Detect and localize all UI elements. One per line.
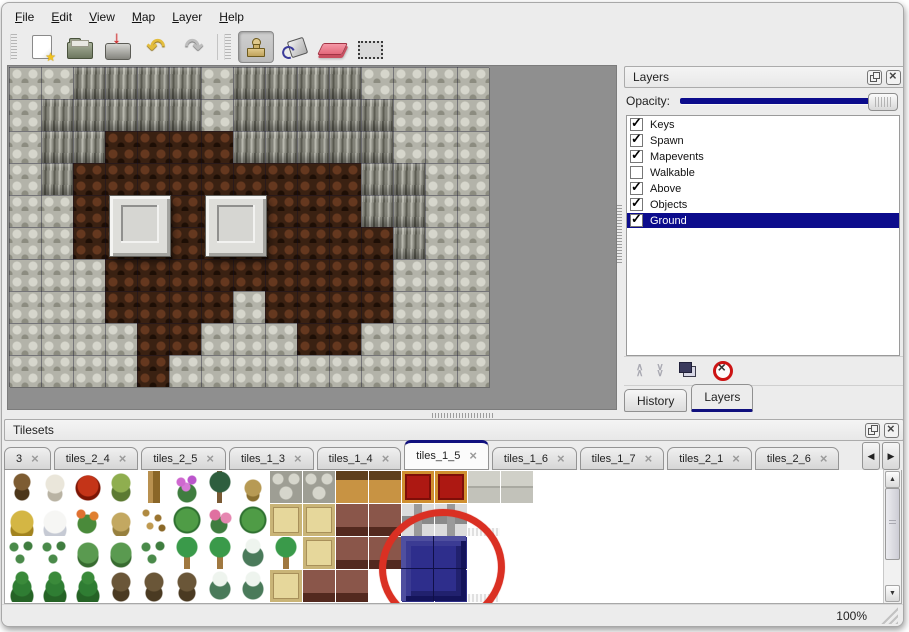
tab-close-icon[interactable]: ×: [206, 454, 214, 464]
tab-label: 3: [16, 453, 22, 465]
map-tile-brown-roof[interactable]: [105, 131, 137, 163]
map-tile-gray-scale-ground[interactable]: [457, 259, 489, 291]
map-tile-gray-scale-ground[interactable]: [457, 67, 489, 99]
map-tile-brown-roof[interactable]: [137, 259, 169, 291]
map-tile-brown-roof[interactable]: [169, 291, 201, 323]
map-tile-brown-roof[interactable]: [137, 291, 169, 323]
map-tile-brown-roof[interactable]: [201, 291, 233, 323]
map-tile-brown-roof[interactable]: [73, 227, 105, 259]
palette-tile-shrubs[interactable]: [6, 537, 38, 569]
palette-tile-gnarled-tree[interactable]: [105, 570, 137, 602]
fill-tool-button[interactable]: [276, 31, 312, 63]
map-tile-gray-scale-ground[interactable]: [457, 99, 489, 131]
float-icon[interactable]: [867, 70, 882, 85]
float-icon[interactable]: [865, 423, 880, 438]
map-tile-cliff-rock[interactable]: [393, 163, 425, 195]
map-tile-brown-roof[interactable]: [137, 131, 169, 163]
map-tile-brown-roof[interactable]: [137, 163, 169, 195]
palette-tile-tan-tile[interactable]: [270, 504, 302, 536]
map-tile-gray-scale-ground[interactable]: [233, 291, 265, 323]
close-icon[interactable]: [884, 423, 899, 438]
map-tile-brown-roof[interactable]: [265, 291, 297, 323]
map-tile-gray-scale-ground[interactable]: [201, 67, 233, 99]
map-tile-gray-scale-ground[interactable]: [9, 131, 41, 163]
map-tile-cliff-rock[interactable]: [233, 99, 265, 131]
map-tile-gray-scale-ground[interactable]: [41, 259, 73, 291]
tileset-tab-3[interactable]: 3×: [4, 447, 51, 470]
palette-tile-wood-shelf[interactable]: [336, 471, 368, 503]
layer-visibility-checkbox[interactable]: [630, 214, 643, 227]
palette-tile-dark-palm[interactable]: [204, 471, 236, 503]
palette-tile-trunk[interactable]: [138, 471, 170, 503]
map-tile-brown-roof[interactable]: [329, 291, 361, 323]
menu-item-edit[interactable]: Edit: [51, 10, 72, 24]
map-tile-brown-roof[interactable]: [201, 163, 233, 195]
map-tile-gray-scale-ground[interactable]: [457, 163, 489, 195]
map-tile-gray-scale-ground[interactable]: [9, 163, 41, 195]
palette-scrollbar[interactable]: ▲ ▼: [883, 470, 901, 603]
layer-visibility-checkbox[interactable]: [630, 118, 643, 131]
map-tile-gray-scale-ground[interactable]: [105, 323, 137, 355]
map-canvas[interactable]: [7, 65, 617, 410]
map-tile-cliff-rock[interactable]: [361, 131, 393, 163]
duplicate-layer-button[interactable]: [683, 366, 696, 377]
map-tile-brown-roof[interactable]: [169, 195, 201, 227]
palette-tile-conifer[interactable]: [6, 570, 38, 602]
palette-tile-bush[interactable]: [105, 537, 137, 569]
palette-tile-red-carpet[interactable]: [435, 471, 467, 503]
menu-item-help[interactable]: Help: [219, 10, 244, 24]
map-tile-gray-scale-ground[interactable]: [41, 227, 73, 259]
palette-tile-snowy-pine[interactable]: [237, 570, 269, 602]
map-tile-gray-scale-ground[interactable]: [169, 355, 201, 387]
map-tile-cliff-rock[interactable]: [361, 195, 393, 227]
map-tile-cliff-rock[interactable]: [137, 99, 169, 131]
undo-icon: ↶: [147, 37, 165, 57]
dock-tab-layers[interactable]: Layers: [691, 384, 753, 412]
layer-visibility-checkbox[interactable]: [630, 134, 643, 147]
map-tile-gray-scale-ground[interactable]: [41, 355, 73, 387]
tab-close-icon[interactable]: ×: [119, 454, 127, 464]
palette-tile-orange-flowers[interactable]: [72, 504, 104, 536]
tileset-tab-tiles_1_5[interactable]: tiles_1_5×: [404, 440, 489, 470]
map-tile-gray-scale-ground[interactable]: [41, 323, 73, 355]
map-tile-brown-roof[interactable]: [137, 355, 169, 387]
palette-tile-purple-flowers[interactable]: [171, 471, 203, 503]
map-tile-cliff-rock[interactable]: [297, 67, 329, 99]
map-tile-gray-scale-ground[interactable]: [329, 355, 361, 387]
map-tile-gray-scale-ground[interactable]: [41, 195, 73, 227]
tab-label: tiles_1_7: [592, 453, 636, 465]
palette-tile-stone-blocks[interactable]: [468, 471, 500, 503]
paint-bucket-icon: [286, 36, 307, 57]
map-tile-cliff-rock[interactable]: [41, 163, 73, 195]
menu-item-view[interactable]: View: [89, 10, 115, 24]
layer-row-spawn[interactable]: Spawn: [627, 133, 899, 148]
map-tile-cliff-rock[interactable]: [41, 99, 73, 131]
delete-layer-button[interactable]: [713, 361, 733, 381]
tab-close-icon[interactable]: ×: [382, 454, 390, 464]
palette-tile-wooden-table[interactable]: [336, 504, 368, 536]
map-tile-gray-scale-ground[interactable]: [393, 259, 425, 291]
map-tile-cliff-rock[interactable]: [393, 227, 425, 259]
splitter-grip: [432, 413, 494, 418]
vertical-splitter[interactable]: [616, 65, 624, 408]
map-tile-brown-roof[interactable]: [105, 163, 137, 195]
palette-tile-dry-weed[interactable]: [237, 471, 269, 503]
map-tile-gray-scale-ground[interactable]: [73, 323, 105, 355]
palette-tile-shrubs[interactable]: [39, 537, 71, 569]
scrollbar-thumb[interactable]: [885, 488, 900, 560]
palette-tile-stone-blocks[interactable]: [501, 471, 533, 503]
map-tile-brown-roof[interactable]: [361, 291, 393, 323]
map-tile-cliff-rock[interactable]: [73, 131, 105, 163]
map-tile-brown-roof[interactable]: [329, 163, 361, 195]
opacity-row: Opacity:: [624, 91, 902, 111]
map-tile-cliff-rock[interactable]: [265, 131, 297, 163]
map-tile-cliff-rock[interactable]: [169, 67, 201, 99]
map-tile-brown-roof[interactable]: [329, 323, 361, 355]
open-button[interactable]: [62, 31, 98, 63]
map-tile-gray-scale-ground[interactable]: [425, 323, 457, 355]
map-tile-gray-scale-ground[interactable]: [425, 195, 457, 227]
map-tile-gray-scale-ground[interactable]: [9, 323, 41, 355]
tileset-tab-tiles_1_6[interactable]: tiles_1_6×: [492, 447, 577, 470]
selection-icon: [358, 41, 383, 59]
menu-bar: FileEditViewMapLayerHelp: [2, 6, 904, 28]
map-tile-gray-scale-ground[interactable]: [105, 355, 137, 387]
tab-close-icon[interactable]: ×: [820, 454, 828, 464]
map-tile-brown-roof[interactable]: [73, 163, 105, 195]
horizontal-splitter[interactable]: [4, 412, 902, 419]
map-tile-brown-roof[interactable]: [297, 259, 329, 291]
tab-close-icon[interactable]: ×: [31, 454, 39, 464]
palette-tile-palm-tree[interactable]: [171, 537, 203, 569]
map-tile-gray-scale-ground[interactable]: [457, 355, 489, 387]
lower-layer-button[interactable]: ∨∨: [656, 365, 663, 377]
palette-tile-palm-tree[interactable]: [204, 537, 236, 569]
map-tile-brown-roof[interactable]: [361, 259, 393, 291]
tileset-tab-tiles_1_3[interactable]: tiles_1_3×: [229, 447, 314, 470]
map-tile-gray-scale-ground[interactable]: [265, 355, 297, 387]
opacity-slider-track: [680, 98, 892, 104]
map-tile-gray-scale-ground[interactable]: [457, 291, 489, 323]
scroll-tabs-left-icon[interactable]: ◀: [862, 442, 880, 470]
palette-tile-hay-mound[interactable]: [6, 504, 38, 536]
dock-tabs: HistoryLayers: [624, 386, 753, 412]
layer-row-keys[interactable]: Keys: [627, 117, 899, 132]
eraser-tool-button[interactable]: [314, 31, 350, 63]
map-tile-brown-roof[interactable]: [297, 195, 329, 227]
palette-tile-snowy-pine[interactable]: [204, 570, 236, 602]
tileset-tab-tiles_2_6[interactable]: tiles_2_6×: [755, 447, 840, 470]
map-tile-brown-roof[interactable]: [233, 259, 265, 291]
map-tile-gray-scale-ground[interactable]: [393, 291, 425, 323]
tab-label: tiles_1_4: [329, 453, 373, 465]
map-tile-gray-scale-ground[interactable]: [9, 99, 41, 131]
palette-tile-wooden-table[interactable]: [336, 537, 368, 569]
palette-tile-empty[interactable]: [501, 570, 533, 602]
menu-item-layer[interactable]: Layer: [172, 10, 202, 24]
map-tile-gray-scale-ground[interactable]: [233, 355, 265, 387]
palette-tile-pink-flowers[interactable]: [204, 504, 236, 536]
map-tile-gray-scale-ground[interactable]: [361, 355, 393, 387]
map-tile-gray-scale-ground[interactable]: [201, 355, 233, 387]
palette-tile-dry-grass[interactable]: [105, 504, 137, 536]
tilesets-panel-title: Tilesets: [13, 423, 54, 437]
map-tile-gray-scale-ground[interactable]: [9, 67, 41, 99]
map-tile-cliff-rock[interactable]: [105, 67, 137, 99]
map-tile-brown-roof[interactable]: [297, 163, 329, 195]
map-tile-cliff-rock[interactable]: [297, 99, 329, 131]
palette-tile-conifer[interactable]: [39, 570, 71, 602]
layer-row-ground[interactable]: Ground: [627, 213, 899, 228]
layer-list-toolbar: ∧∧ ∨∨: [624, 356, 904, 386]
map-tile-gray-scale-ground[interactable]: [425, 131, 457, 163]
map-tile-gray-scale-ground[interactable]: [393, 99, 425, 131]
new-file-button[interactable]: [24, 31, 60, 63]
palette-tile-wood-shelf[interactable]: [369, 471, 401, 503]
layer-row-above[interactable]: Above: [627, 181, 899, 196]
map-tile-cliff-rock[interactable]: [297, 131, 329, 163]
palette-tile-gnarled-tree[interactable]: [138, 570, 170, 602]
scroll-tabs-right-icon[interactable]: ▶: [882, 442, 900, 470]
layers-panel-titlebar: Layers: [624, 66, 904, 88]
map-tile-brown-roof[interactable]: [361, 227, 393, 259]
map-tile-gray-scale-ground[interactable]: [361, 323, 393, 355]
palette-tile-empty[interactable]: [501, 504, 533, 536]
layer-visibility-checkbox[interactable]: [630, 150, 643, 163]
map-tile-brown-roof[interactable]: [297, 291, 329, 323]
status-bar: 100%: [2, 604, 903, 627]
map-tile-gray-scale-ground[interactable]: [9, 291, 41, 323]
map-tile-gray-scale-ground[interactable]: [425, 67, 457, 99]
palette-tile-tan-tile[interactable]: [303, 504, 335, 536]
palette-tile-stone-floor[interactable]: [303, 471, 335, 503]
map-tile-brown-roof[interactable]: [201, 131, 233, 163]
save-button[interactable]: [100, 31, 136, 63]
tileset-tab-tiles_1_4[interactable]: tiles_1_4×: [317, 447, 402, 470]
map-tile-cliff-rock[interactable]: [265, 67, 297, 99]
tab-close-icon[interactable]: ×: [294, 454, 302, 464]
map-tile-cliff-rock[interactable]: [329, 131, 361, 163]
layer-row-walkable[interactable]: Walkable: [627, 165, 899, 180]
map-tile-gray-scale-ground[interactable]: [73, 291, 105, 323]
dock-tab-history[interactable]: History: [624, 389, 687, 412]
layer-visibility-checkbox[interactable]: [630, 182, 643, 195]
map-object-window[interactable]: [109, 195, 171, 257]
map-tile-gray-scale-ground[interactable]: [361, 67, 393, 99]
map-tile-cliff-rock[interactable]: [73, 99, 105, 131]
palette-tile-lily-pad[interactable]: [237, 504, 269, 536]
map-tile-gray-scale-ground[interactable]: [73, 259, 105, 291]
map-tile-gray-scale-ground[interactable]: [425, 163, 457, 195]
map-tile-cliff-rock[interactable]: [265, 99, 297, 131]
tileset-tab-tiles_2_4[interactable]: tiles_2_4×: [54, 447, 139, 470]
map-tile-gray-scale-ground[interactable]: [425, 259, 457, 291]
map-tile-brown-roof[interactable]: [297, 227, 329, 259]
opacity-slider[interactable]: [678, 92, 898, 110]
palette-tile-snowy-pine[interactable]: [237, 537, 269, 569]
map-tile-cliff-rock[interactable]: [105, 99, 137, 131]
map-tile-gray-scale-ground[interactable]: [425, 291, 457, 323]
map-tile-brown-roof[interactable]: [105, 291, 137, 323]
palette-tile-tan-tile[interactable]: [303, 537, 335, 569]
map-tile-cliff-rock[interactable]: [41, 131, 73, 163]
splitter-grip: [617, 205, 622, 263]
palette-tile-stone-floor[interactable]: [270, 471, 302, 503]
tab-label: tiles_1_5: [416, 450, 460, 462]
map-tile-cliff-rock[interactable]: [233, 131, 265, 163]
map-tile-gray-scale-ground[interactable]: [201, 323, 233, 355]
layer-visibility-checkbox[interactable]: [630, 198, 643, 211]
stamp-icon: [247, 38, 265, 57]
map-tile-cliff-rock[interactable]: [73, 67, 105, 99]
map-tile-brown-roof[interactable]: [265, 195, 297, 227]
map-tile-brown-roof[interactable]: [297, 323, 329, 355]
map-tile-gray-scale-ground[interactable]: [201, 99, 233, 131]
tab-label: tiles_2_4: [66, 453, 110, 465]
app-window: FileEditViewMapLayerHelp ↶↷ Layers Opaci…: [1, 2, 904, 627]
map-tile-cliff-rock[interactable]: [393, 195, 425, 227]
palette-tile-tan-tile[interactable]: [270, 570, 302, 602]
tab-close-icon[interactable]: ×: [645, 454, 653, 464]
map-tile-gray-scale-ground[interactable]: [425, 227, 457, 259]
layer-visibility-checkbox[interactable]: [630, 166, 643, 179]
palette-tile-empty[interactable]: [501, 537, 533, 569]
map-tile-gray-scale-ground[interactable]: [9, 195, 41, 227]
redo-icon: ↷: [185, 37, 203, 57]
map-tile-gray-scale-ground[interactable]: [41, 291, 73, 323]
layer-list[interactable]: KeysSpawnMapeventsWalkableAboveObjectsGr…: [626, 115, 900, 356]
map-tile-brown-roof[interactable]: [169, 227, 201, 259]
palette-tile-white-branches[interactable]: [39, 471, 71, 503]
map-tile-gray-scale-ground[interactable]: [9, 355, 41, 387]
map-tile-gray-scale-ground[interactable]: [457, 195, 489, 227]
menu-item-map[interactable]: Map: [132, 10, 155, 24]
palette-tile-snow-mound[interactable]: [39, 504, 71, 536]
tab-label: tiles_2_5: [153, 453, 197, 465]
map-object-window[interactable]: [205, 195, 267, 257]
map-tile-cliff-rock[interactable]: [361, 99, 393, 131]
map-tile-cliff-rock[interactable]: [329, 99, 361, 131]
palette-tile-leaves[interactable]: [138, 504, 170, 536]
map-tile-brown-roof[interactable]: [169, 323, 201, 355]
map-tile-brown-roof[interactable]: [105, 259, 137, 291]
map-tile-gray-scale-ground[interactable]: [425, 99, 457, 131]
close-icon[interactable]: [886, 70, 901, 85]
palette-tile-wooden-table[interactable]: [336, 570, 368, 602]
map-tile-cliff-rock[interactable]: [169, 99, 201, 131]
map-tile-cliff-rock[interactable]: [329, 67, 361, 99]
tab-close-icon[interactable]: ×: [557, 454, 565, 464]
scroll-up-icon[interactable]: ▲: [885, 471, 900, 488]
map-tile-brown-roof[interactable]: [329, 259, 361, 291]
stamp-tool-button[interactable]: [238, 31, 274, 63]
tileset-tab-tiles_2_5[interactable]: tiles_2_5×: [141, 447, 226, 470]
map-tile-gray-scale-ground[interactable]: [393, 355, 425, 387]
toolbar-drag-handle[interactable]: [10, 34, 17, 60]
layer-row-objects[interactable]: Objects: [627, 197, 899, 212]
opacity-slider-handle[interactable]: [868, 93, 898, 111]
raise-layer-button[interactable]: ∧∧: [636, 365, 643, 377]
tileset-palette[interactable]: ▲ ▼: [4, 470, 902, 604]
undo-button[interactable]: ↶: [138, 31, 174, 63]
layers-panel-title: Layers: [633, 70, 669, 84]
palette-tile-gnarled-tree[interactable]: [171, 570, 203, 602]
map-tile-gray-scale-ground[interactable]: [457, 323, 489, 355]
tileset-tab-tiles_2_1[interactable]: tiles_2_1×: [667, 447, 752, 470]
map-tile-cliff-rock[interactable]: [137, 67, 169, 99]
palette-tile-stump[interactable]: [105, 471, 137, 503]
map-tile-gray-scale-ground[interactable]: [393, 131, 425, 163]
zoom-level: 100%: [836, 609, 867, 623]
map-tile-brown-roof[interactable]: [265, 163, 297, 195]
map-tile-gray-scale-ground[interactable]: [73, 355, 105, 387]
palette-tile-palm-tree[interactable]: [270, 537, 302, 569]
palette-tile-wooden-table[interactable]: [303, 570, 335, 602]
layer-row-mapevents[interactable]: Mapevents: [627, 149, 899, 164]
palette-tile-red-flower[interactable]: [72, 471, 104, 503]
tab-label: tiles_1_6: [504, 453, 548, 465]
tileset-tab-tiles_1_7[interactable]: tiles_1_7×: [580, 447, 665, 470]
select-tool-button[interactable]: [352, 31, 388, 63]
menu-item-file[interactable]: File: [15, 10, 34, 24]
new-file-icon: [32, 35, 52, 59]
map-tile-brown-roof[interactable]: [329, 195, 361, 227]
map-tile-brown-roof[interactable]: [169, 259, 201, 291]
map-tile-gray-scale-ground[interactable]: [393, 323, 425, 355]
layer-name: Walkable: [650, 167, 695, 179]
redo-button[interactable]: ↷: [176, 31, 212, 63]
palette-tile-lily-pad[interactable]: [171, 504, 203, 536]
palette-tile-dead-tree[interactable]: [6, 471, 38, 503]
map-tile-brown-roof[interactable]: [137, 323, 169, 355]
map-tile-gray-scale-ground[interactable]: [425, 355, 457, 387]
map-tile-gray-scale-ground[interactable]: [9, 259, 41, 291]
map-tile-gray-scale-ground[interactable]: [233, 323, 265, 355]
tab-close-icon[interactable]: ×: [469, 451, 477, 461]
map-tile-gray-scale-ground[interactable]: [457, 227, 489, 259]
map-tile-brown-roof[interactable]: [73, 195, 105, 227]
palette-tile-shrubs[interactable]: [138, 537, 170, 569]
map-tile-gray-scale-ground[interactable]: [265, 323, 297, 355]
resize-grip[interactable]: [878, 606, 898, 624]
tab-close-icon[interactable]: ×: [732, 454, 740, 464]
map-tile-brown-roof[interactable]: [233, 163, 265, 195]
map-tile-brown-roof[interactable]: [169, 131, 201, 163]
scroll-down-icon[interactable]: ▼: [885, 585, 900, 602]
map-tile-brown-roof[interactable]: [169, 163, 201, 195]
palette-tile-red-carpet[interactable]: [402, 471, 434, 503]
map-tile-gray-scale-ground[interactable]: [457, 131, 489, 163]
map-tile-gray-scale-ground[interactable]: [393, 67, 425, 99]
palette-tile-bush[interactable]: [72, 537, 104, 569]
palette-tile-conifer[interactable]: [72, 570, 104, 602]
map-tile-gray-scale-ground[interactable]: [9, 227, 41, 259]
map-tile-brown-roof[interactable]: [265, 259, 297, 291]
toolbar-drag-handle[interactable]: [224, 34, 231, 60]
map-tile-brown-roof[interactable]: [329, 227, 361, 259]
tab-label: tiles_1_3: [241, 453, 285, 465]
map-tile-brown-roof[interactable]: [201, 259, 233, 291]
map-tile-gray-scale-ground[interactable]: [297, 355, 329, 387]
map-tile-cliff-rock[interactable]: [233, 67, 265, 99]
map-tile-cliff-rock[interactable]: [361, 163, 393, 195]
map-tile-gray-scale-ground[interactable]: [41, 67, 73, 99]
tile-map[interactable]: [9, 67, 489, 387]
map-tile-brown-roof[interactable]: [265, 227, 297, 259]
